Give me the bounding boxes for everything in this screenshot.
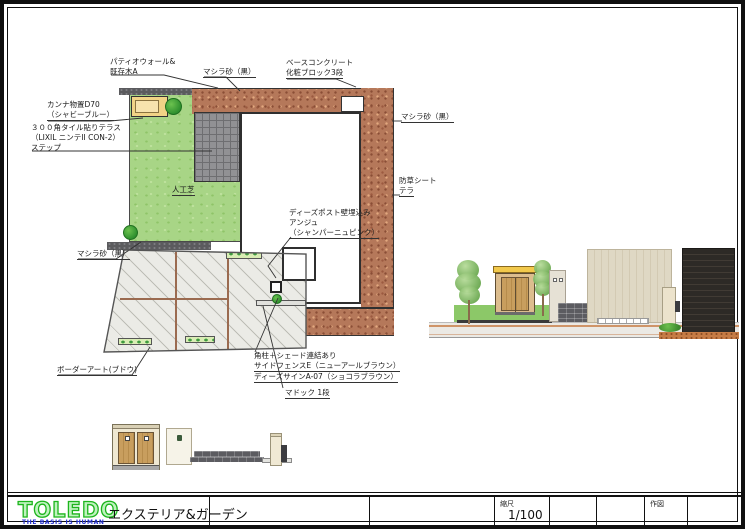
- plan-paving-joint: [175, 252, 177, 352]
- annotation-line: 既存木A: [110, 67, 138, 76]
- plan-border-art-strip: [185, 336, 215, 343]
- label-kanna-shed: カンナ物置D70 （シャビーブルー）: [47, 100, 114, 121]
- annotation-line: ボーダーアート(ブドウ): [57, 365, 137, 376]
- plan-wall-opening: [341, 96, 364, 112]
- scale-value: 1/100: [508, 508, 543, 522]
- elev-steps: [558, 303, 588, 322]
- annotation-line: 化粧ブロック3段: [286, 68, 343, 79]
- elev-shrub: [659, 323, 681, 332]
- plan-paving-joint: [120, 298, 229, 300]
- plan-shed: [131, 96, 168, 117]
- elev-wall-base-ticks: [597, 318, 649, 324]
- elev-shed-doors: [501, 277, 529, 311]
- label-artificial-turf: 人工芝: [172, 185, 195, 196]
- annotation-line: 角柱＋シェード連結あり: [254, 351, 337, 360]
- annotation-line: カンナ物置D70: [47, 100, 100, 109]
- elev-tree: [455, 260, 483, 324]
- label-mashira-top: マシラ砂（黒）: [203, 67, 256, 78]
- annotation-line: 人工芝: [172, 185, 195, 196]
- mini-shed-door: [137, 432, 154, 464]
- elev-wall-window: [559, 278, 563, 282]
- plan-border-art-strip: [118, 338, 152, 345]
- plan-bush-icon: [165, 98, 182, 115]
- label-corner-post-fence: 角柱＋シェード連結あり サイドフェンスE（ニューアールブラウン） ディーズサイン…: [254, 351, 400, 383]
- annotation-line: マドック 1段: [285, 388, 330, 399]
- elev-main-wall: [587, 249, 672, 323]
- elev-wall-window: [553, 278, 557, 282]
- elev-gate-pillar: [662, 287, 676, 325]
- footer-divider: [209, 497, 210, 527]
- annotation-line: （シャンパーニュピンク）: [289, 228, 379, 239]
- annotation-line: パティオウォール&: [110, 57, 175, 66]
- label-mashira-left: マシラ砂（黒）: [77, 249, 130, 260]
- annotation-line: 防草シート: [399, 176, 437, 185]
- plan-bush-icon: [272, 294, 282, 304]
- annotation-line: ３００角タイル貼りテラス: [31, 123, 121, 132]
- mini-wall-panel: [166, 428, 192, 465]
- elev-pillar-accessory: [675, 301, 680, 312]
- mini-steps: [190, 457, 264, 462]
- label-weed-sheet: 防草シート テラ: [399, 176, 437, 197]
- footer-divider: [494, 497, 495, 527]
- plan-shed-door: [135, 100, 159, 113]
- mini-shed-door: [118, 432, 135, 464]
- plan-bush-icon: [123, 225, 138, 240]
- mini-wall-ornament: [177, 435, 182, 441]
- footer-divider: [644, 497, 645, 527]
- annotation-line: ディーズサインA-07（ショコラブラウン）: [254, 372, 398, 383]
- label-patio-wall: パティオウォール& 既存木A: [110, 57, 175, 77]
- footer-divider: [687, 497, 688, 527]
- mini-shed-front: [112, 424, 160, 470]
- elev-gravel-strip: [659, 332, 739, 339]
- elevation-3d-view: [429, 244, 741, 340]
- mini-pillar-accessory: [281, 445, 287, 462]
- footer-separator: [8, 492, 741, 493]
- elev-shed-body: [495, 273, 535, 315]
- elev-shed-base: [495, 312, 535, 315]
- company-tagline: THE BASIS IS HUMAN: [22, 519, 104, 526]
- drawn-by-label: 作図: [650, 499, 664, 509]
- plan-gravel-band-bottom: [306, 307, 394, 336]
- annotation-line: ステップ: [31, 143, 61, 152]
- annotation-line: ベースコンクリート: [286, 58, 353, 67]
- footer-divider: [549, 497, 550, 527]
- label-mashira-right: マシラ砂（黒）: [401, 112, 454, 123]
- plan-entry-porch: [282, 247, 316, 281]
- drawing-sheet: パティオウォール& 既存木A マシラ砂（黒） ベースコンクリート 化粧ブロック3…: [0, 0, 745, 529]
- elev-black-wall: [682, 248, 735, 335]
- label-base-concrete: ベースコンクリート 化粧ブロック3段: [286, 58, 353, 79]
- annotation-line: マシラ砂（黒）: [203, 67, 256, 78]
- label-border-art: ボーダーアート(ブドウ): [57, 365, 137, 376]
- annotation-line: マシラ砂（黒）: [77, 249, 130, 260]
- plan-paving-joint: [227, 252, 229, 352]
- annotation-line: サイドフェンスE（ニューアールブラウン）: [254, 361, 400, 372]
- label-madoc: マドック 1段: [285, 388, 330, 399]
- annotation-line: ディーズポスト壁埋込み: [289, 208, 371, 217]
- annotation-line: テラ: [399, 186, 414, 197]
- plan-soil-strip-top: [119, 88, 195, 95]
- annotation-line: （シャビーブルー）: [47, 110, 114, 121]
- label-tile-terrace: ３００角タイル貼りテラス （LIXIL ニンテII CON-2） ステップ: [31, 123, 121, 153]
- plan-post-anju: [270, 281, 282, 293]
- company-name: エクステリア&ガーデン: [108, 504, 248, 523]
- footer-separator: [8, 495, 741, 497]
- footer-divider: [369, 497, 370, 527]
- annotation-line: アンジュ: [289, 218, 318, 227]
- plan-tile-terrace: [194, 112, 240, 182]
- label-dees-post: ディーズポスト壁埋込み アンジュ （シャンパーニュピンク）: [289, 208, 379, 239]
- elev-shed-roof: [493, 266, 537, 273]
- annotation-line: （LIXIL ニンテII CON-2）: [31, 133, 120, 142]
- footer-divider: [596, 497, 597, 527]
- annotation-line: マシラ砂（黒）: [401, 112, 454, 123]
